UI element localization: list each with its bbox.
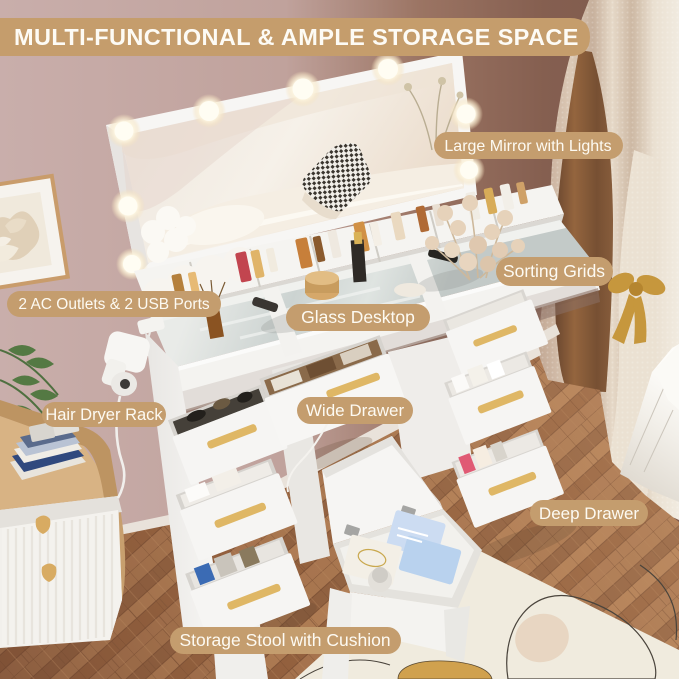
svg-text:Deep Drawer: Deep Drawer — [539, 504, 639, 523]
svg-text:Large Mirror with Lights: Large Mirror with Lights — [444, 138, 611, 155]
svg-text:Glass Desktop: Glass Desktop — [301, 307, 415, 327]
svg-text:Wide Drawer: Wide Drawer — [306, 401, 405, 420]
svg-text:Hair Dryer Rack: Hair Dryer Rack — [45, 406, 163, 424]
svg-text:Storage Stool with Cushion: Storage Stool with Cushion — [179, 630, 390, 650]
svg-text:Sorting Grids: Sorting Grids — [503, 261, 605, 281]
svg-text:2 AC Outlets & 2 USB Ports: 2 AC Outlets & 2 USB Ports — [18, 296, 209, 313]
svg-text:MULTI-FUNCTIONAL & AMPLE STORA: MULTI-FUNCTIONAL & AMPLE STORAGE SPACE — [14, 24, 579, 50]
